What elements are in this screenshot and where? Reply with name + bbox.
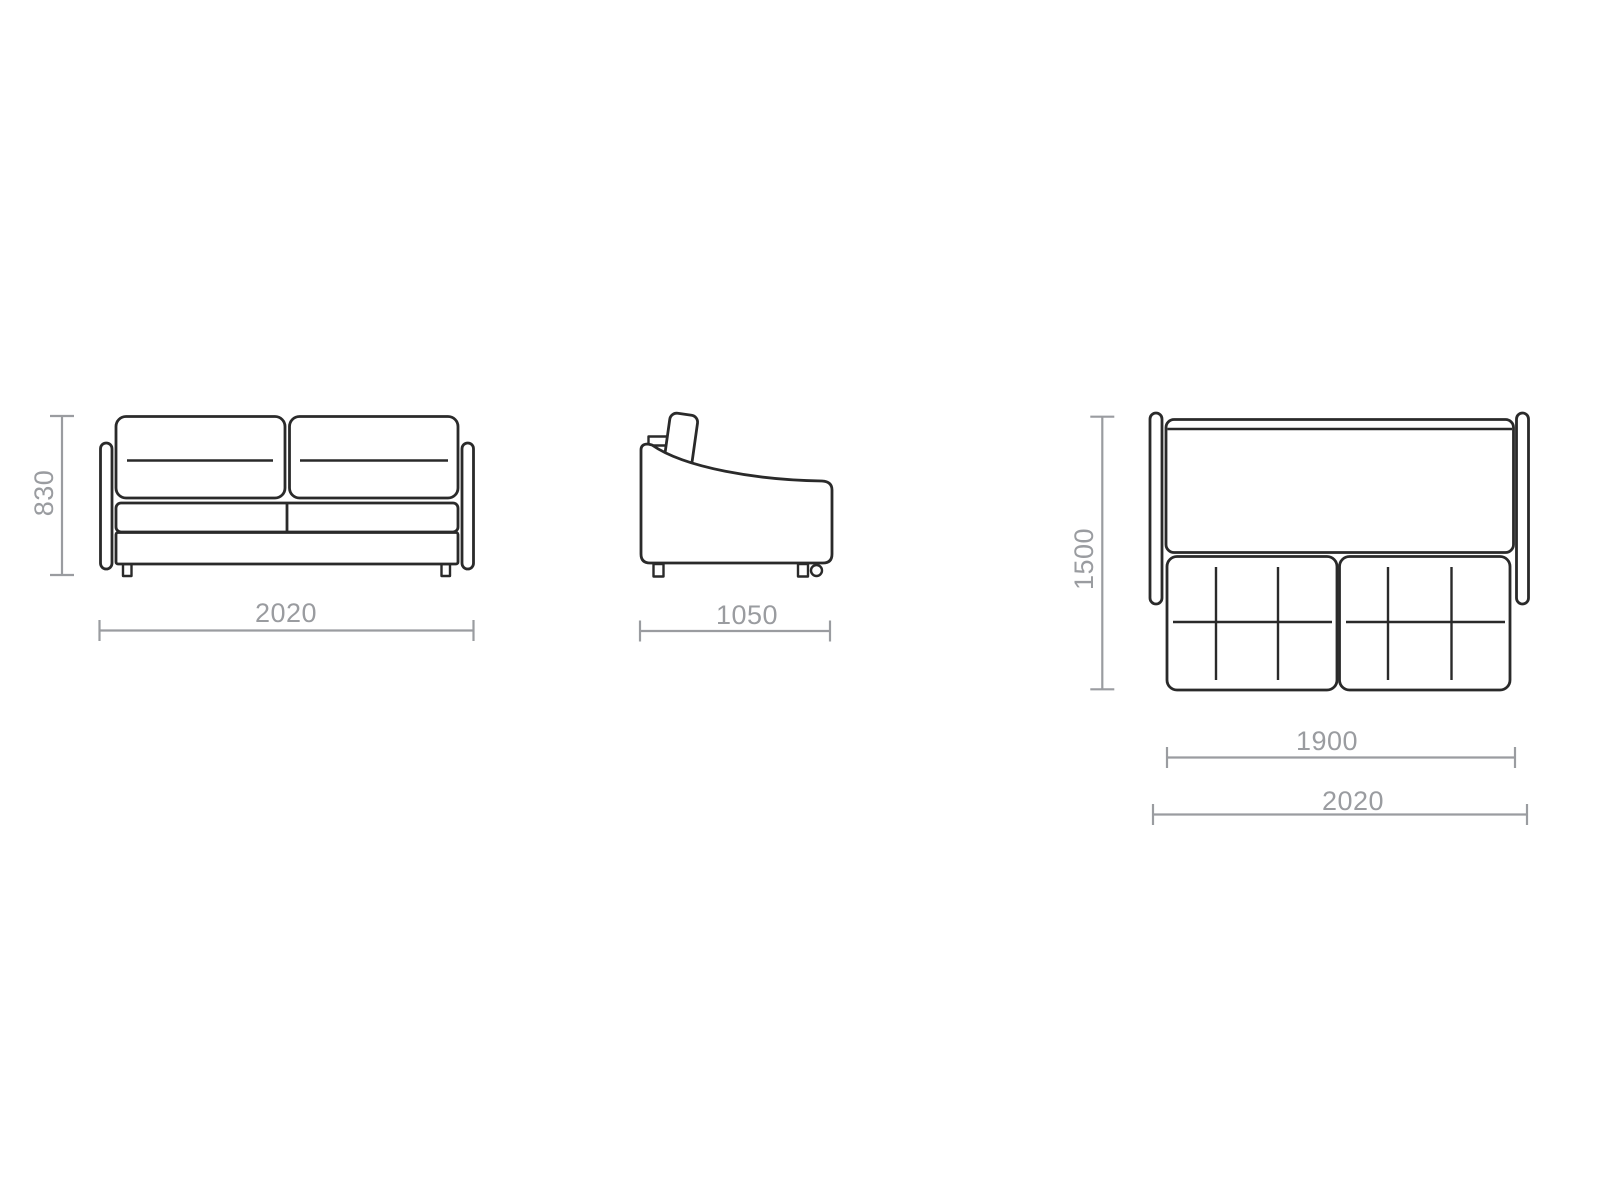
dim-bed-1900: 1900	[1167, 726, 1515, 768]
dim-height-830: 830	[29, 416, 74, 575]
dim-1500-label: 1500	[1069, 528, 1099, 590]
dim-height-830-label: 830	[29, 470, 59, 517]
front-foot-left	[123, 564, 132, 576]
front-back-cushion-left	[116, 417, 285, 499]
side-foot-front	[654, 564, 664, 577]
front-base	[116, 533, 458, 565]
top-mattress-right	[1340, 557, 1511, 691]
dim-top-width-label: 2020	[1322, 786, 1384, 816]
sofa-bed-dimension-drawing: 830 2020	[0, 0, 1600, 1200]
side-body	[641, 444, 832, 563]
front-back-cushion-right	[290, 417, 459, 499]
dim-depth-label: 1050	[716, 600, 778, 630]
dim-front-width-2020: 2020	[100, 598, 474, 641]
top-armrest-left	[1150, 413, 1162, 604]
front-foot-right	[442, 564, 451, 576]
top-view: 1500 1900 2020	[1069, 413, 1529, 825]
drawing-canvas: 830 2020	[0, 0, 1600, 1200]
top-mattress-left	[1167, 557, 1337, 691]
dim-1900-label: 1900	[1296, 726, 1358, 756]
side-caster-wheel	[811, 565, 822, 576]
front-armrest-left	[101, 443, 113, 569]
front-view: 830 2020	[29, 416, 474, 641]
front-armrest-right	[462, 443, 474, 569]
dim-top-width-2020: 2020	[1153, 786, 1527, 825]
top-backrest-panel	[1166, 420, 1514, 553]
dim-front-width-label: 2020	[255, 598, 317, 628]
side-view: 1050	[640, 412, 832, 641]
top-armrest-right	[1517, 413, 1529, 604]
dim-depth-1050: 1050	[640, 600, 830, 642]
dim-unfolded-1500: 1500	[1069, 417, 1114, 690]
side-foot-rear	[798, 564, 808, 577]
